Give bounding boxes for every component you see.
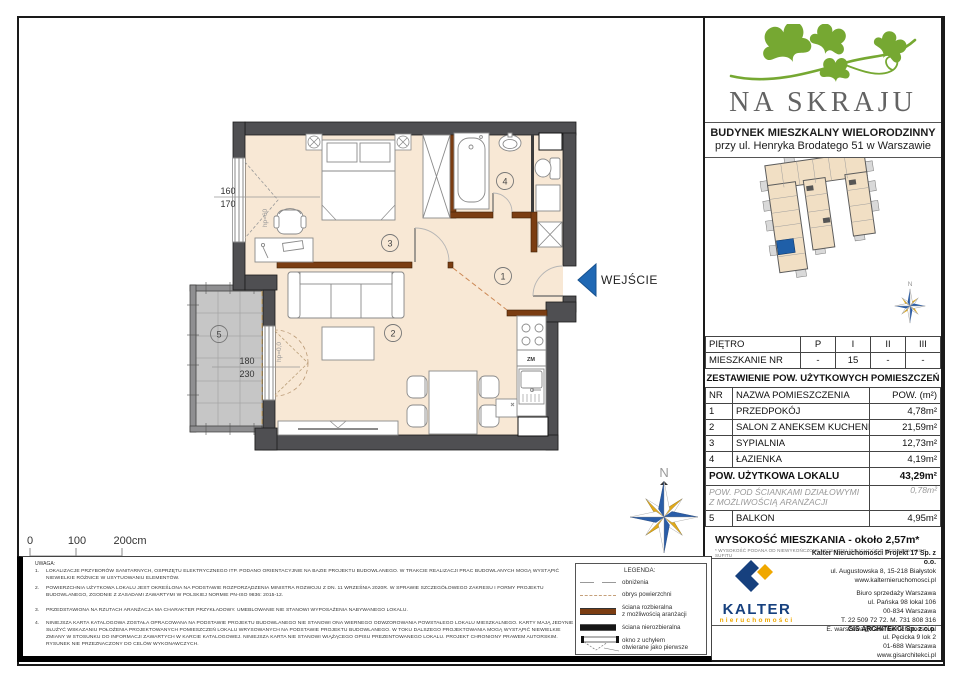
bedside-lamp-left — [306, 134, 322, 150]
site-highlighted-unit — [776, 239, 795, 255]
wardrobe — [423, 135, 450, 218]
kalter-logo-subtext: nieruchomości — [705, 618, 809, 625]
sill-height-balcony: hp=0,0 — [276, 342, 283, 362]
svg-text:180: 180 — [239, 356, 254, 366]
kitchen-counter — [517, 316, 546, 416]
desk — [255, 238, 313, 262]
developer-contact: Kalter Nieruchomości Projekt 17 Sp. z o.… — [809, 549, 941, 635]
scale-bar: 0 100 200cm — [27, 535, 147, 556]
floor-table: PIĘTRO P I II III MIESZKANIE NR - 15 - - — [705, 336, 941, 369]
entrance-label: WEJŚCIE — [601, 272, 658, 287]
building-type: BUDYNEK MIESZKALNY WIELORODZINNY — [707, 127, 939, 139]
ivy-logo-icon — [723, 24, 923, 88]
info-panel: NA SKRAJU BUDYNEK MIESZKALNY WIELORODZIN… — [703, 16, 943, 662]
brand-logo-section: NA SKRAJU — [705, 18, 941, 123]
dishwasher-label: ZM — [527, 357, 535, 363]
area-table: NR NAZWA POMIESZCZENIA POW. (m²) 1 PRZED… — [705, 387, 941, 527]
legend-item-fixed-wall: ściana nierozbieralna — [580, 624, 702, 631]
svg-text:160: 160 — [220, 186, 235, 196]
bathroom-cabinet — [536, 185, 560, 211]
bathtub — [454, 133, 489, 209]
svg-text:4: 4 — [502, 177, 507, 187]
sill-height-window: hp=60 — [262, 208, 269, 227]
legend-item-lowered-ceiling: obniżenia — [580, 579, 702, 586]
svg-text:3: 3 — [387, 239, 392, 249]
legend-item-demountable-wall: ściana rozbieralnaz możliwością aranżacj… — [580, 604, 702, 619]
site-plan-section: N — [705, 158, 941, 336]
note-item: 4.Niniejsza karta katalogowa została opr… — [35, 620, 575, 648]
kalter-logo-icon — [734, 559, 780, 595]
area-outline-symbol — [580, 595, 616, 596]
compass-north-label: N — [659, 465, 668, 480]
washing-machine — [538, 222, 562, 247]
site-plan-drawing: N — [705, 158, 941, 334]
site-building-footprint — [765, 158, 879, 273]
note-item: 3.Przedstawiona na rzutach aranżacja ma … — [35, 607, 575, 614]
desk-chair — [274, 209, 306, 234]
coffee-table — [322, 327, 374, 360]
toilet-partition-wall — [531, 135, 534, 212]
legend-item-tilt-window: okno z uchyłemotwierane jako pierwsze — [580, 636, 702, 652]
developer-footer-block: KALTER nieruchomości Kalter Nieruchomośc… — [705, 558, 941, 625]
svg-text:230: 230 — [239, 369, 254, 379]
site-compass-icon: N — [895, 281, 926, 323]
svg-text:1: 1 — [500, 272, 505, 282]
floor-row: PIĘTRO P I II III — [706, 337, 941, 353]
brand-name: NA SKRAJU — [729, 89, 917, 117]
architect-footer-block: GIS ARCHITEKCI Sp. z o.o. ul. Pęcicka 9 … — [705, 625, 941, 660]
fixed-wall-symbol — [580, 624, 616, 631]
apartment-number-label: MIESZKANIE NR — [706, 353, 801, 369]
lowered-ceiling-symbol — [580, 582, 616, 583]
entrance-marker: WEJŚCIE — [578, 264, 658, 296]
table-row: 4 ŁAZIENKA 4,19m² — [706, 452, 941, 468]
entrance-arrow-icon — [578, 264, 596, 296]
sofa — [288, 272, 404, 318]
svg-text:200cm: 200cm — [113, 535, 146, 547]
building-address-section: BUDYNEK MIESZKALNY WIELORODZINNY przy ul… — [705, 123, 941, 158]
kalter-logo-text: KALTER — [705, 602, 809, 617]
catalog-card-page: ZM 1 2 3 4 5 160 170 180 230 hp=60 hp=0,… — [0, 0, 960, 678]
building-address: przy ul. Henryka Brodatego 51 w Warszawi… — [707, 140, 939, 152]
bed — [322, 140, 395, 220]
area-table-header: NR NAZWA POMIESZCZENIA POW. (m²) — [706, 388, 941, 404]
tv-stand — [278, 421, 398, 435]
apartment-height: WYSOKOŚĆ MIESZKANIA - około 2,57m* — [715, 534, 935, 546]
partition-area-row: POW. POD ŚCIANKAMI DZIAŁOWYMIZ MOŻLIWOŚC… — [706, 486, 941, 511]
svg-text:170: 170 — [220, 199, 235, 209]
legend-item-area-outline: obrys powierzchni — [580, 591, 702, 598]
svg-text:5: 5 — [216, 330, 221, 340]
note-item: 2.Powierzchnia użytkowa lokalu jest okre… — [35, 585, 575, 599]
balcony-row: 5 BALKON 4,95m² — [706, 511, 941, 527]
note-item: 1.Lokalizacje przyborów sanitarnych, osp… — [35, 568, 575, 582]
area-table-title: ZESTAWIENIE POW. UŻYTKOWYCH POMIESZCZEŃ — [705, 369, 941, 387]
kalter-logo: KALTER nieruchomości — [705, 559, 809, 625]
table-row: 3 SYPIALNIA 12,73m² — [706, 436, 941, 452]
toilet — [535, 158, 560, 179]
legend-box: LEGENDA: obniżenia obrys powierzchni ści… — [575, 563, 707, 655]
svg-text:100: 100 — [68, 535, 86, 547]
architect-contact: GIS ARCHITEKCI Sp. z o.o. ul. Pęcicka 9 … — [705, 625, 941, 661]
demountable-wall-symbol — [580, 608, 616, 615]
floor-label: PIĘTRO — [706, 337, 801, 353]
compass-rose: N — [630, 465, 698, 553]
svg-text:N: N — [908, 281, 913, 288]
total-area-row: POW. UŻYTKOWA LOKALU 43,29m² — [706, 468, 941, 486]
bedside-lamp-right — [395, 134, 411, 150]
svg-text:0: 0 — [27, 535, 33, 547]
tilt-window-symbol — [580, 636, 620, 652]
legend-title: LEGENDA: — [624, 567, 702, 574]
table-row: 1 PRZEDPOKÓJ 4,78m² — [706, 404, 941, 420]
svg-text:2: 2 — [390, 329, 395, 339]
compass-main-points — [630, 481, 698, 553]
apartment-number-row: MIESZKANIE NR - 15 - - — [706, 353, 941, 369]
fridge-cabinet — [496, 399, 517, 417]
table-row: 2 SALON Z ANEKSEM KUCHENNYM 21,59m² — [706, 420, 941, 436]
notes-title: UWAGA: — [35, 561, 55, 567]
